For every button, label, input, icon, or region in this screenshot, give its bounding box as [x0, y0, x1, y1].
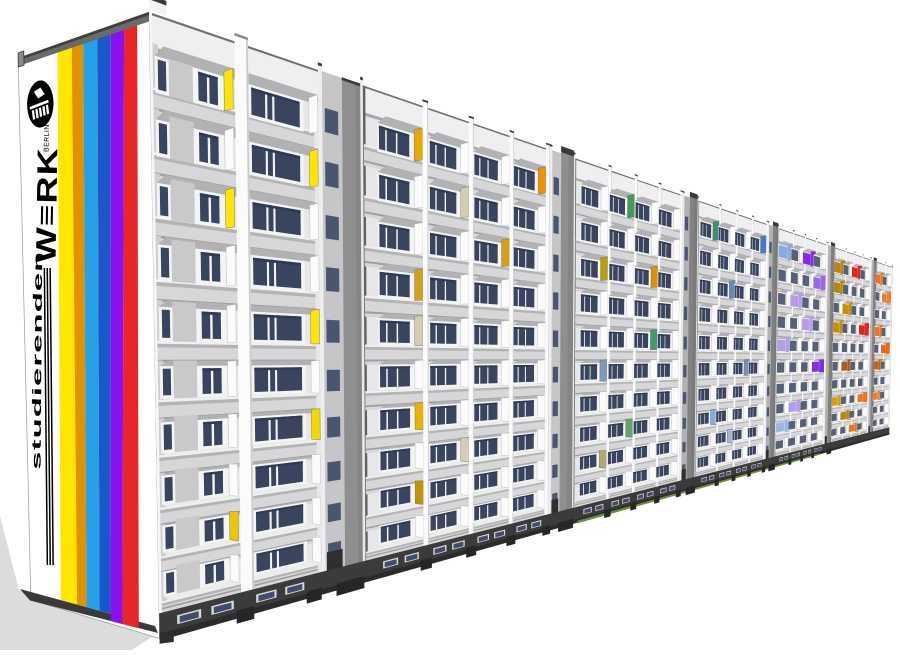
- svg-text:W≡RK: W≡RK: [31, 147, 64, 263]
- svg-text:studierenden: studierenden: [29, 250, 45, 470]
